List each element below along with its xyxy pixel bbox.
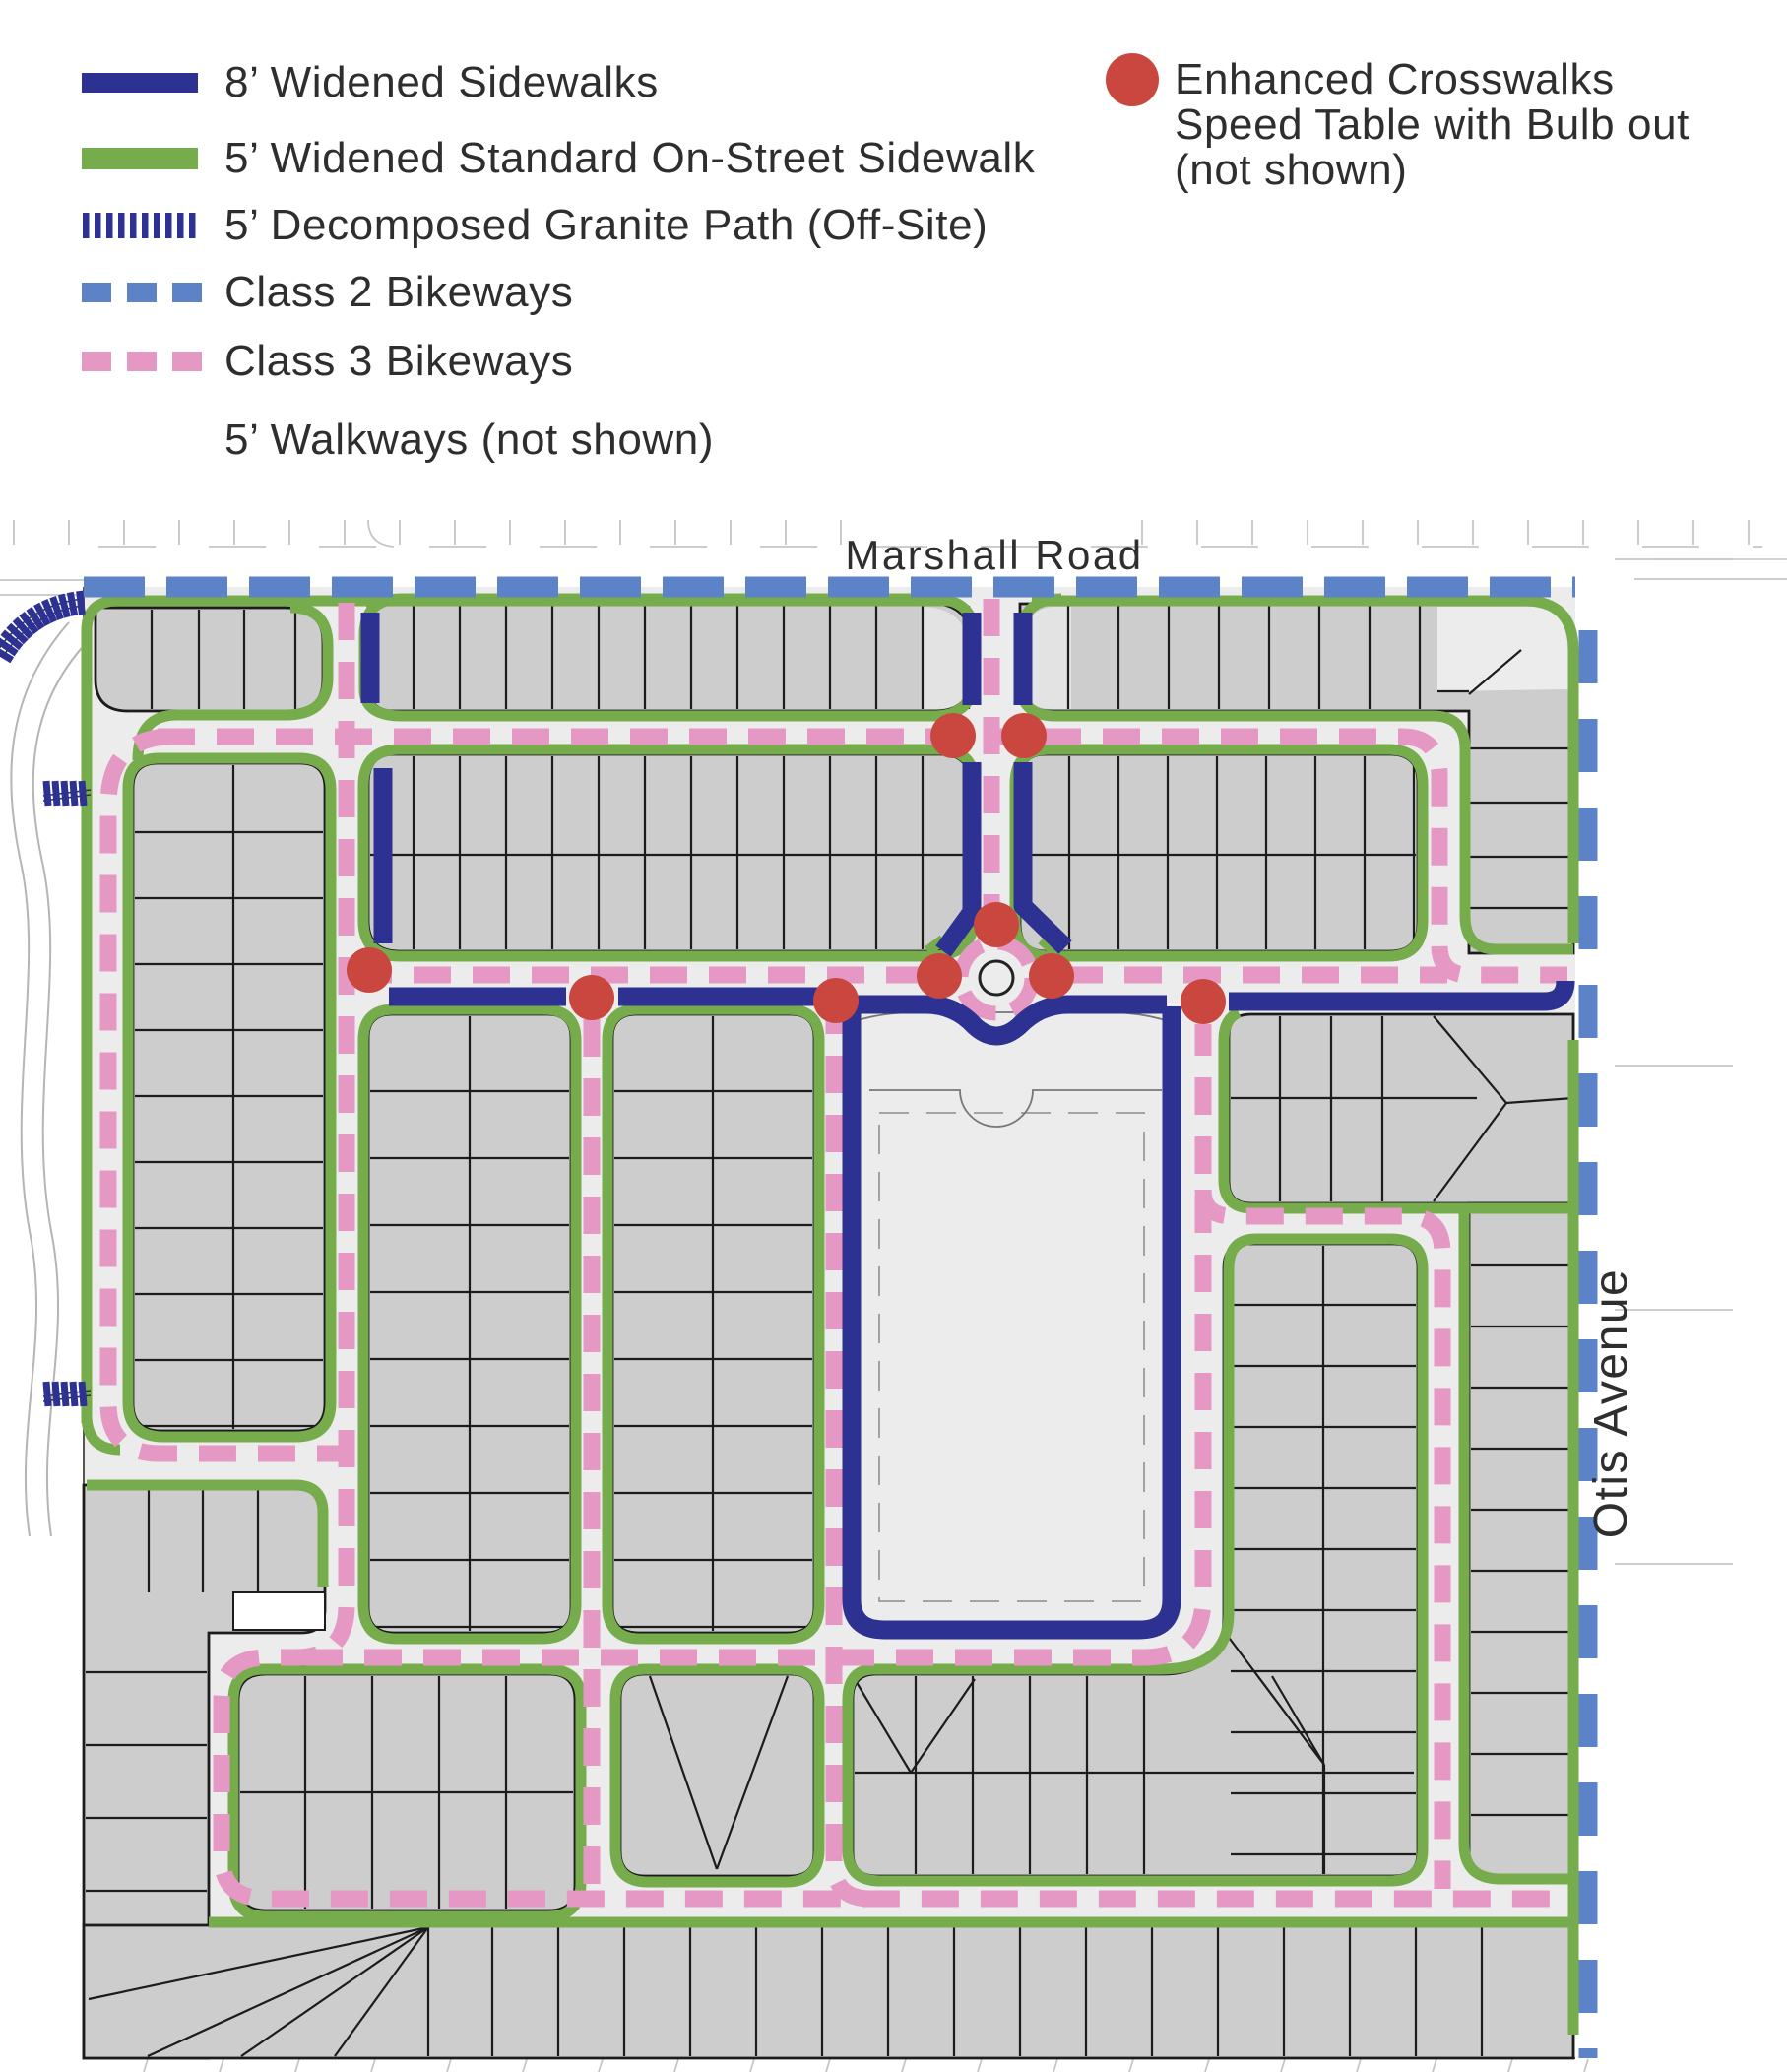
svg-text:Class 3 Bikeways: Class 3 Bikeways xyxy=(224,337,573,385)
svg-text:Marshall Road: Marshall Road xyxy=(845,532,1143,578)
svg-text:(not shown): (not shown) xyxy=(1175,146,1407,194)
svg-text:5’ Walkways (not shown): 5’ Walkways (not shown) xyxy=(224,416,714,464)
svg-text:Class 2 Bikeways: Class 2 Bikeways xyxy=(224,268,573,316)
svg-text:5’ Widened Standard On-Street: 5’ Widened Standard On-Street Sidewalk xyxy=(224,134,1036,182)
svg-text:5’ Decomposed Granite Path (Of: 5’ Decomposed Granite Path (Off-Site) xyxy=(224,201,988,249)
svg-text:Speed Table with Bulb out: Speed Table with Bulb out xyxy=(1175,100,1690,149)
svg-text:Enhanced Crosswalks: Enhanced Crosswalks xyxy=(1175,55,1615,103)
svg-text:8’ Widened Sidewalks: 8’ Widened Sidewalks xyxy=(224,58,659,106)
svg-text:Otis Avenue: Otis Avenue xyxy=(1585,1268,1637,1538)
